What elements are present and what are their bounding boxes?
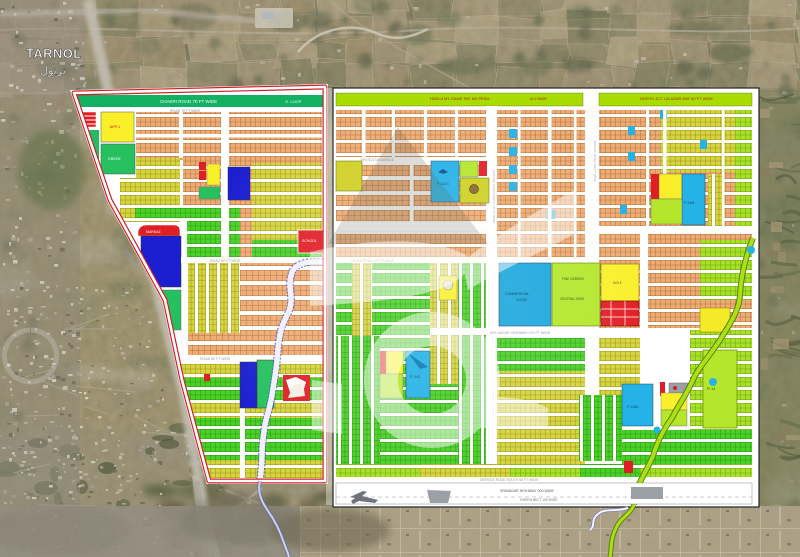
svg-text:M-1 HWAY: M-1 HWAY [530,97,548,101]
svg-text:NORTH JCT LALAZAR AVE 60 FT WI: NORTH JCT LALAZAR AVE 60 FT WIDE [640,96,713,101]
svg-text:GREEN BELT 100 WIDE: GREEN BELT 100 WIDE [520,498,558,502]
svg-text:P-14: P-14 [707,386,716,391]
svg-text:GREEN: GREEN [108,157,121,161]
svg-text:SERVICE ROAD SOUTH 60 FT WIDE: SERVICE ROAD SOUTH 60 FT WIDE [480,478,539,482]
svg-text:G. LOOP: G. LOOP [285,99,302,104]
svg-text:SRINAGAR HIGHWAY 300 WIDE: SRINAGAR HIGHWAY 300 WIDE [500,489,554,493]
svg-text:APP-1: APP-1 [110,125,120,129]
svg-text:ترنول: ترنول [40,65,66,77]
svg-text:F-14/5: F-14/5 [684,201,694,205]
svg-text:TARNOL: TARNOL [26,46,82,61]
svg-text:F-14A: F-14A [627,404,638,409]
svg-text:CHAKRI ROAD 70 FT WIDE: CHAKRI ROAD 70 FT WIDE [160,99,217,104]
svg-text:MARKAZ: MARKAZ [146,230,161,234]
